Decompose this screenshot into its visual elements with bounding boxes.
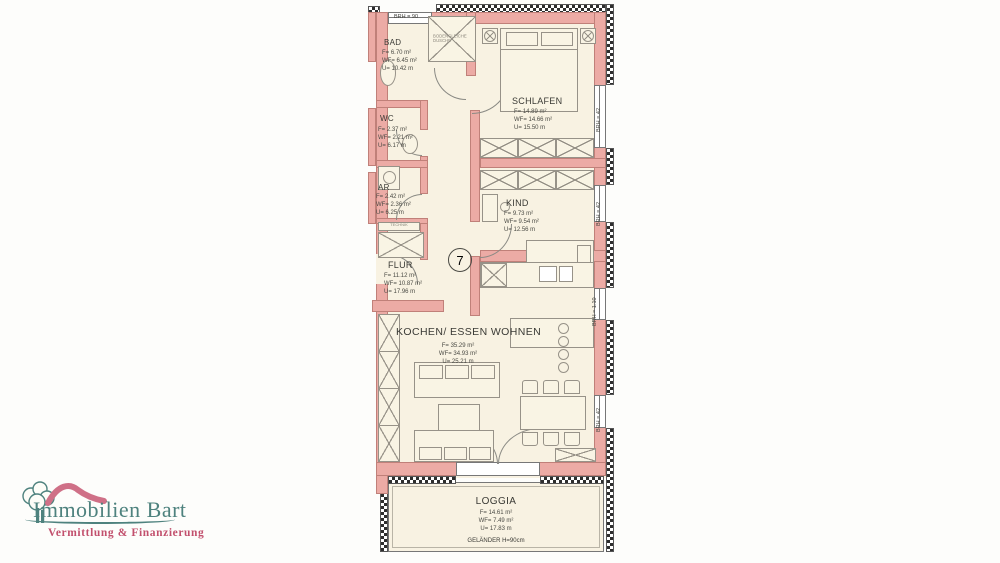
dining-table <box>520 396 586 430</box>
floor-plan: BODENGLEICHE DUSCHE TECHNIK <box>368 4 616 560</box>
area-wf: WF= 2.21 m² <box>378 134 413 142</box>
wall-flur-kitchen <box>470 256 480 316</box>
wardrobe-kind-1 <box>480 170 518 190</box>
burner-icon <box>558 323 569 334</box>
room-values-flur: F= 11.12 m² WF= 10.87 m² U= 17.96 m <box>384 272 422 296</box>
wall-schlafen-kind <box>480 158 606 168</box>
area-wf: WF= 2.36 m² <box>376 201 411 209</box>
burner-icon <box>558 362 569 373</box>
pillow-right <box>541 32 573 46</box>
nightstand-left <box>482 28 498 44</box>
hatch-right-1 <box>606 4 614 85</box>
unit-number-badge: 7 <box>448 248 472 272</box>
sofa-cushion <box>445 365 469 379</box>
area-wf: WF= 10.87 m² <box>384 280 422 288</box>
hatch-loggia-left-top <box>388 476 456 484</box>
hatch-right-4 <box>606 320 614 395</box>
wardrobe-schlafen-2 <box>518 138 556 158</box>
room-values-loggia: F= 14.61 m² WF= 7.49 m² U= 17.83 m <box>426 509 566 533</box>
area-u: U= 12.56 m <box>504 226 539 234</box>
room-values-ar: F= 2.42 m² WF= 2.36 m² U= 6.25 m <box>376 193 411 217</box>
room-values-bad: F= 6.70 m² WF= 6.45 m² U= 10.42 m <box>382 49 417 73</box>
coffee-table <box>438 404 480 432</box>
burner-icon <box>558 349 569 360</box>
area-wf: WF= 9.54 m² <box>504 218 539 226</box>
wall-stub-1 <box>368 12 376 62</box>
area-f: F= 14.89 m² <box>514 108 552 116</box>
sofa-bottom <box>414 430 494 462</box>
area-u: U= 15.50 m <box>514 124 552 132</box>
brh-90-label: BRH = 90 <box>394 14 418 20</box>
hatch-right-3 <box>606 222 614 288</box>
room-label-bad: BAD <box>384 38 401 47</box>
area-f: F= 2.37 m² <box>378 126 413 134</box>
room-values-wohnen: F= 35.29 m² WF= 34.93 m² U= 25.21 m <box>396 342 520 366</box>
area-f: F= 14.61 m² <box>426 509 566 517</box>
wall-hall-kind <box>470 110 480 222</box>
brh-42-kind: BRH = 42 <box>596 186 602 226</box>
wall-flur-wohnen <box>372 300 444 312</box>
wardrobe-schlafen-1 <box>480 138 518 158</box>
dining-chair <box>543 380 559 394</box>
wardrobe-kind-2 <box>518 170 556 190</box>
kitchen-counter <box>480 262 594 288</box>
hatch-right-2 <box>606 148 614 185</box>
burner-icon <box>558 336 569 347</box>
room-label-ar: AR <box>378 183 390 192</box>
brh-42-dining: BRH = 42 <box>596 392 602 432</box>
area-wf: WF= 34.93 m² <box>396 350 520 358</box>
shower-label: BODENGLEICHE DUSCHE <box>433 35 470 44</box>
dining-chair <box>522 432 538 446</box>
company-tagline: Vermittlung & Finanzierung <box>48 527 204 539</box>
sofa-cushion <box>444 447 467 460</box>
room-values-kind: F= 9.73 m² WF= 9.54 m² U= 12.56 m <box>504 210 539 234</box>
kitchen-sink-basin2 <box>559 266 573 282</box>
sofa-cushion <box>419 447 442 460</box>
lamp-icon <box>582 30 594 42</box>
room-label-kind: KIND <box>506 198 529 208</box>
bed-divider-line <box>501 49 577 50</box>
area-u: U= 17.83 m <box>426 525 566 533</box>
area-f: F= 9.73 m² <box>504 210 539 218</box>
room-label-wc: WC <box>380 114 394 123</box>
hatch-right-5 <box>606 428 614 552</box>
loggia-door-threshold <box>456 462 540 476</box>
dining-chair <box>543 432 559 446</box>
area-u: U= 10.42 m <box>382 65 417 73</box>
sofa-cushion <box>471 365 495 379</box>
sideboard <box>555 448 596 462</box>
room-label-flur: FLUR <box>388 260 413 270</box>
area-u: U= 6.25 m <box>376 209 411 217</box>
sofa-cushion <box>469 447 491 460</box>
sofa-cushion <box>419 365 443 379</box>
wardrobe-schlafen-3 <box>556 138 594 158</box>
wall-corridor-1 <box>420 100 428 130</box>
pillow-left <box>506 32 538 46</box>
area-u: U= 17.96 m <box>384 288 422 296</box>
dining-chair <box>564 432 580 446</box>
room-values-wc: F= 2.37 m² WF= 2.21 m² U= 6.17 m <box>378 126 413 150</box>
room-label-loggia: LOGGIA <box>426 496 566 507</box>
hatch-loggia-left <box>380 484 388 552</box>
cooktop <box>557 322 581 346</box>
area-f: F= 35.29 m² <box>396 342 520 350</box>
wardrobe-kind-3 <box>556 170 594 190</box>
area-wf: WF= 7.49 m² <box>426 517 566 525</box>
area-f: F= 6.70 m² <box>382 49 417 57</box>
shower: BODENGLEICHE DUSCHE <box>428 16 476 62</box>
company-logo: Immobilien Bart Vermittlung & Finanzieru… <box>18 478 228 560</box>
dining-chair <box>522 380 538 394</box>
brh-42-schlafen: BRH = 42 <box>596 92 602 132</box>
area-wf: WF= 6.45 m² <box>382 57 417 65</box>
sofa-top <box>414 362 500 398</box>
kind-desk <box>482 194 498 222</box>
area-f: F= 11.12 m² <box>384 272 422 280</box>
room-label-wohnen: KOCHEN/ ESSEN WOHNEN <box>396 326 520 338</box>
flur-closet <box>378 232 424 258</box>
technik-box: TECHNIK <box>378 222 420 231</box>
area-u: U= 25.21 m <box>396 358 520 366</box>
dining-chair <box>564 380 580 394</box>
hatch-loggia-right-top <box>540 476 604 484</box>
brh-110-kitchen: BRH = 1.10 <box>592 286 598 326</box>
shelf-cell <box>378 425 400 462</box>
area-f: F= 2.42 m² <box>376 193 411 201</box>
wall-stub-3 <box>368 172 376 224</box>
nightstand-right <box>580 28 596 44</box>
kitchen-sink-basin1 <box>539 266 557 282</box>
area-wf: WF= 14.66 m² <box>514 116 552 124</box>
lamp-icon <box>484 30 496 42</box>
area-u: U= 6.17 m <box>378 142 413 150</box>
technik-label: TECHNIK <box>383 223 415 228</box>
wall-stub-2 <box>368 108 376 166</box>
railing-label: GELÄNDER H=90cm <box>426 538 566 544</box>
room-values-schlafen: F= 14.89 m² WF= 14.66 m² U= 15.50 m <box>514 108 552 132</box>
room-label-schlafen: SCHLAFEN <box>512 96 562 106</box>
shelf-cell <box>378 388 400 426</box>
kitchen-cabinet <box>481 263 507 287</box>
